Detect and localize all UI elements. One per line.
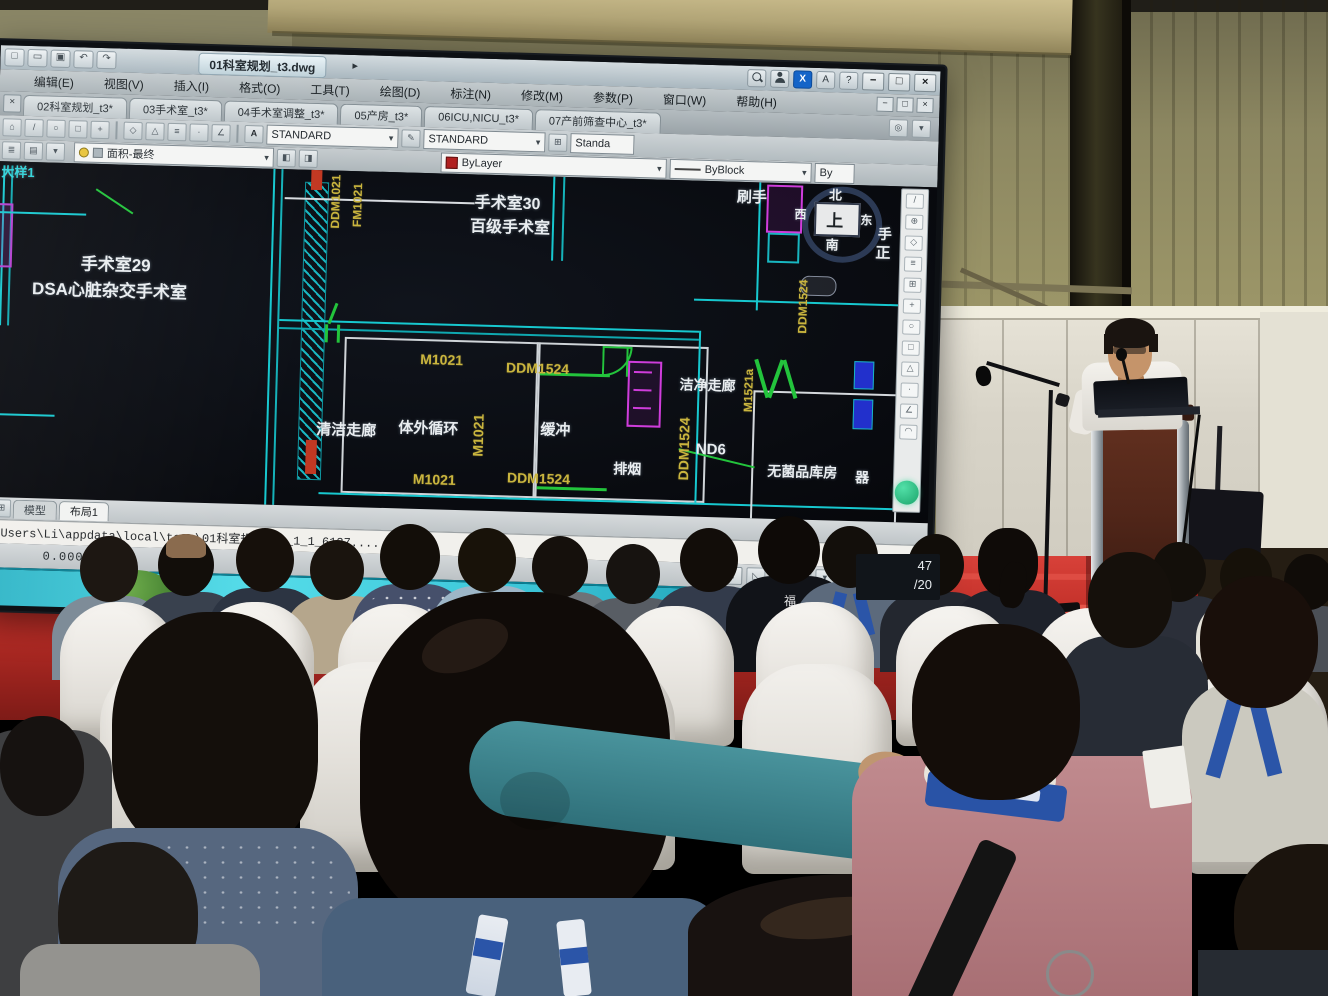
audience-head [822, 526, 878, 588]
audience-head [606, 544, 660, 604]
audience-head [380, 524, 440, 590]
paper-badge [1142, 745, 1192, 808]
audience-head [80, 536, 138, 602]
audience-head [310, 540, 364, 600]
audience-head-bald [166, 534, 206, 558]
foreground-layer [0, 0, 1328, 996]
audience-head [112, 612, 318, 858]
audience-body [1198, 950, 1328, 996]
conference-photo: □ ▭ ▣ ↶ ↷ 01科室规划_t3.dwg ▸ X A ? − □ × − [0, 0, 1328, 996]
audience-body [20, 944, 260, 996]
audience-head [0, 716, 84, 816]
audience-head [458, 528, 516, 592]
audience-head [236, 528, 294, 592]
audience-head [758, 516, 820, 584]
audience-body [322, 898, 722, 996]
audience-head [912, 624, 1080, 800]
strap-ring [1046, 950, 1094, 996]
audience-head [680, 528, 738, 592]
audience-head [908, 534, 964, 596]
audience-head [532, 536, 588, 598]
lanyard-strap-band [559, 947, 589, 966]
audience-head [1088, 552, 1172, 648]
audience-head [1200, 576, 1318, 708]
